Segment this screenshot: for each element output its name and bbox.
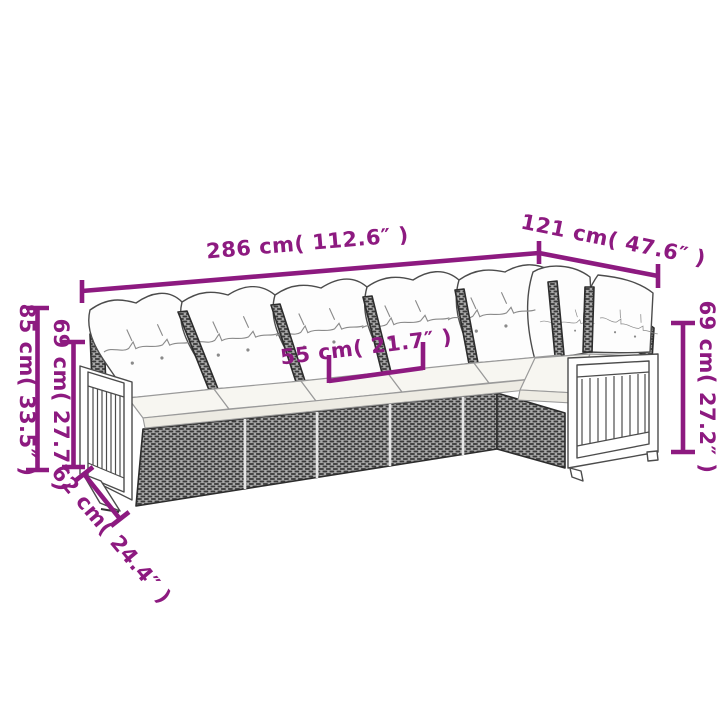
sofa-drawing [80,265,662,512]
sofa-dimension-illustration: 286 cm( 112.6″ ) 121 cm( 47.6″ ) 55 cm( … [0,0,720,720]
right-armrest-foot-right [647,451,658,461]
right-armrest-panel [568,354,658,481]
dimension-armrest-height-right: 69 cm( 27.2″ ) [671,301,719,474]
dimension-label-armrest-height-right: 69 cm( 27.2″ ) [695,301,719,474]
dimension-back-height: 85 cm( 33.5″ ) [15,304,49,477]
dimension-label-total-length: 286 cm( 112.6″ ) [205,223,409,264]
left-armrest-slats [93,388,120,476]
dimension-label-back-height: 85 cm( 33.5″ ) [15,304,39,477]
right-armrest-foot-left [570,468,583,481]
dimension-label-side-depth: 121 cm( 47.6″ ) [519,210,708,271]
product-dimension-diagram: 286 cm( 112.6″ ) 121 cm( 47.6″ ) 55 cm( … [0,0,720,720]
rattan-base-corner [497,393,565,468]
